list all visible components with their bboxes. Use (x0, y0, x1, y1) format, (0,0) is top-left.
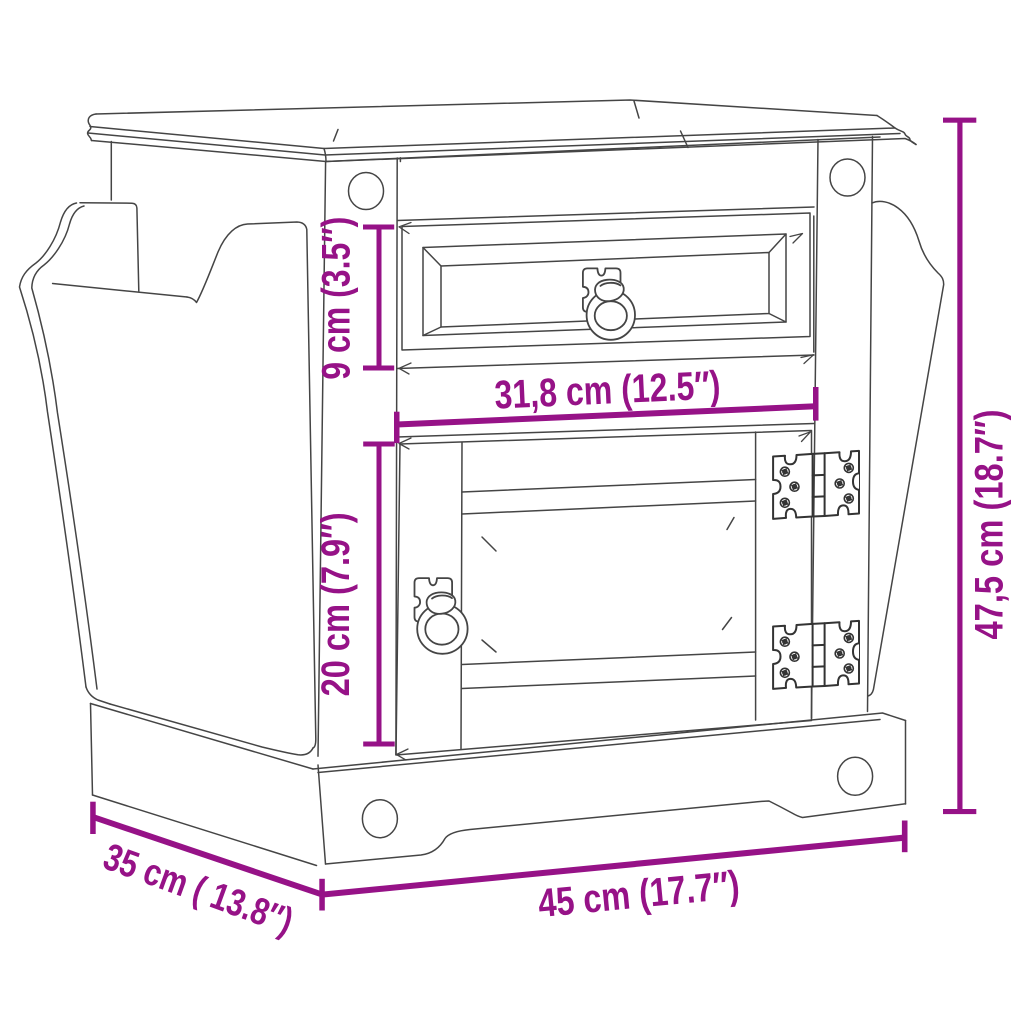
svg-text:47,5 cm (18.7″): 47,5 cm (18.7″) (968, 410, 1012, 640)
svg-text:20 cm (7.9″): 20 cm (7.9″) (314, 512, 358, 696)
svg-text:9 cm (3.5″): 9 cm (3.5″) (315, 217, 359, 380)
